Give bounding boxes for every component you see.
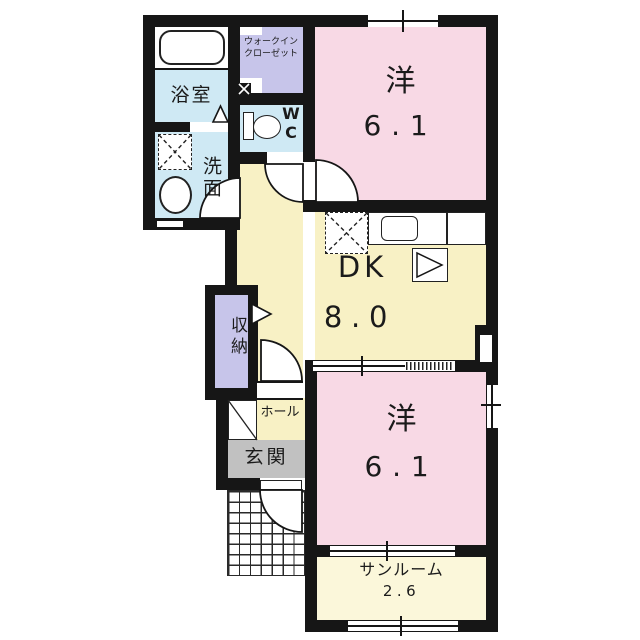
entrance-label: 玄関 — [228, 448, 305, 468]
wall-top — [143, 15, 498, 27]
bedroom-bottom-size: 6.1 — [317, 452, 486, 481]
wall-wc-bottom — [240, 152, 267, 164]
walkin-closet-label: ウォークイン クローゼット — [236, 37, 306, 60]
storage-label: 収納 — [219, 302, 245, 372]
wc-label-c: C — [280, 123, 302, 142]
wall-corridor-left — [225, 230, 237, 285]
toilet-bowl-icon — [253, 115, 281, 139]
sliding-door-line — [313, 365, 405, 367]
sunroom-label: サンルーム — [317, 562, 486, 579]
wc-label: W C — [280, 104, 302, 142]
bathtub-icon — [159, 30, 225, 65]
wall-entrance-bottom — [216, 478, 260, 490]
washroom-label: 洗面 — [194, 148, 220, 208]
bathroom-label: 浴室 — [155, 86, 228, 106]
dk-hall-threshold — [257, 381, 303, 400]
bedroom-bottom-label: 洋 — [317, 404, 486, 436]
window-top-tick — [402, 10, 404, 32]
window-b2bottom-tick — [386, 541, 388, 561]
shoe-cabinet-icon — [228, 400, 257, 440]
appliance-space-marker — [325, 212, 368, 254]
wall-bath-right — [228, 15, 240, 132]
washroom-vent — [157, 221, 183, 227]
window-b2bottom-midline — [330, 550, 455, 552]
window-sunroom-midline — [348, 625, 458, 627]
wall-left-upper — [143, 15, 155, 230]
hall-label: ホール — [255, 406, 305, 420]
ps-slit — [480, 335, 492, 362]
dk-corridor-mid — [237, 230, 303, 285]
wall-washroom-right — [228, 132, 240, 182]
sliding-door-tick — [361, 356, 363, 376]
wall-entrance-right — [305, 372, 317, 632]
tub-platform-line — [155, 68, 228, 70]
bedroom-top-size: 6.1 — [315, 111, 486, 140]
washer-pan-icon — [158, 134, 192, 170]
dk-size: 8.0 — [300, 302, 420, 332]
pipe-box-icon — [238, 83, 251, 96]
wc-label-w: W — [280, 104, 302, 123]
washbasin-icon — [159, 176, 192, 214]
kitchen-sink-icon — [381, 216, 418, 241]
sunroom-size: 2.6 — [317, 584, 486, 600]
sliding-door-hatch — [406, 362, 454, 370]
window-bedroom2-right — [487, 385, 498, 428]
dk-corridor-low — [258, 285, 303, 388]
dk-corridor-top — [240, 164, 303, 230]
dk-label: DK — [305, 252, 420, 282]
bedroom-top-label: 洋 — [315, 66, 486, 98]
entrance-door-leaf — [260, 480, 302, 490]
window-b2right-midline — [491, 385, 493, 428]
walkin-closet-label-line1: ウォークイン — [236, 37, 306, 49]
wall-hall-left — [216, 390, 228, 478]
counter-divider — [446, 213, 448, 244]
wall-bedroom-top-bottom — [303, 200, 498, 212]
entrance-porch-tiles — [227, 490, 305, 576]
walkin-closet-label-line2: クローゼット — [236, 49, 306, 61]
wall-bath-bottom — [155, 122, 190, 132]
window-sunroom-tick — [400, 616, 402, 636]
wall-right-outer — [486, 15, 498, 632]
floorplan: 浴室 ウォークイン クローゼット W C 洗面 洋 6.1 DK 8.0 収納 … — [0, 0, 640, 640]
